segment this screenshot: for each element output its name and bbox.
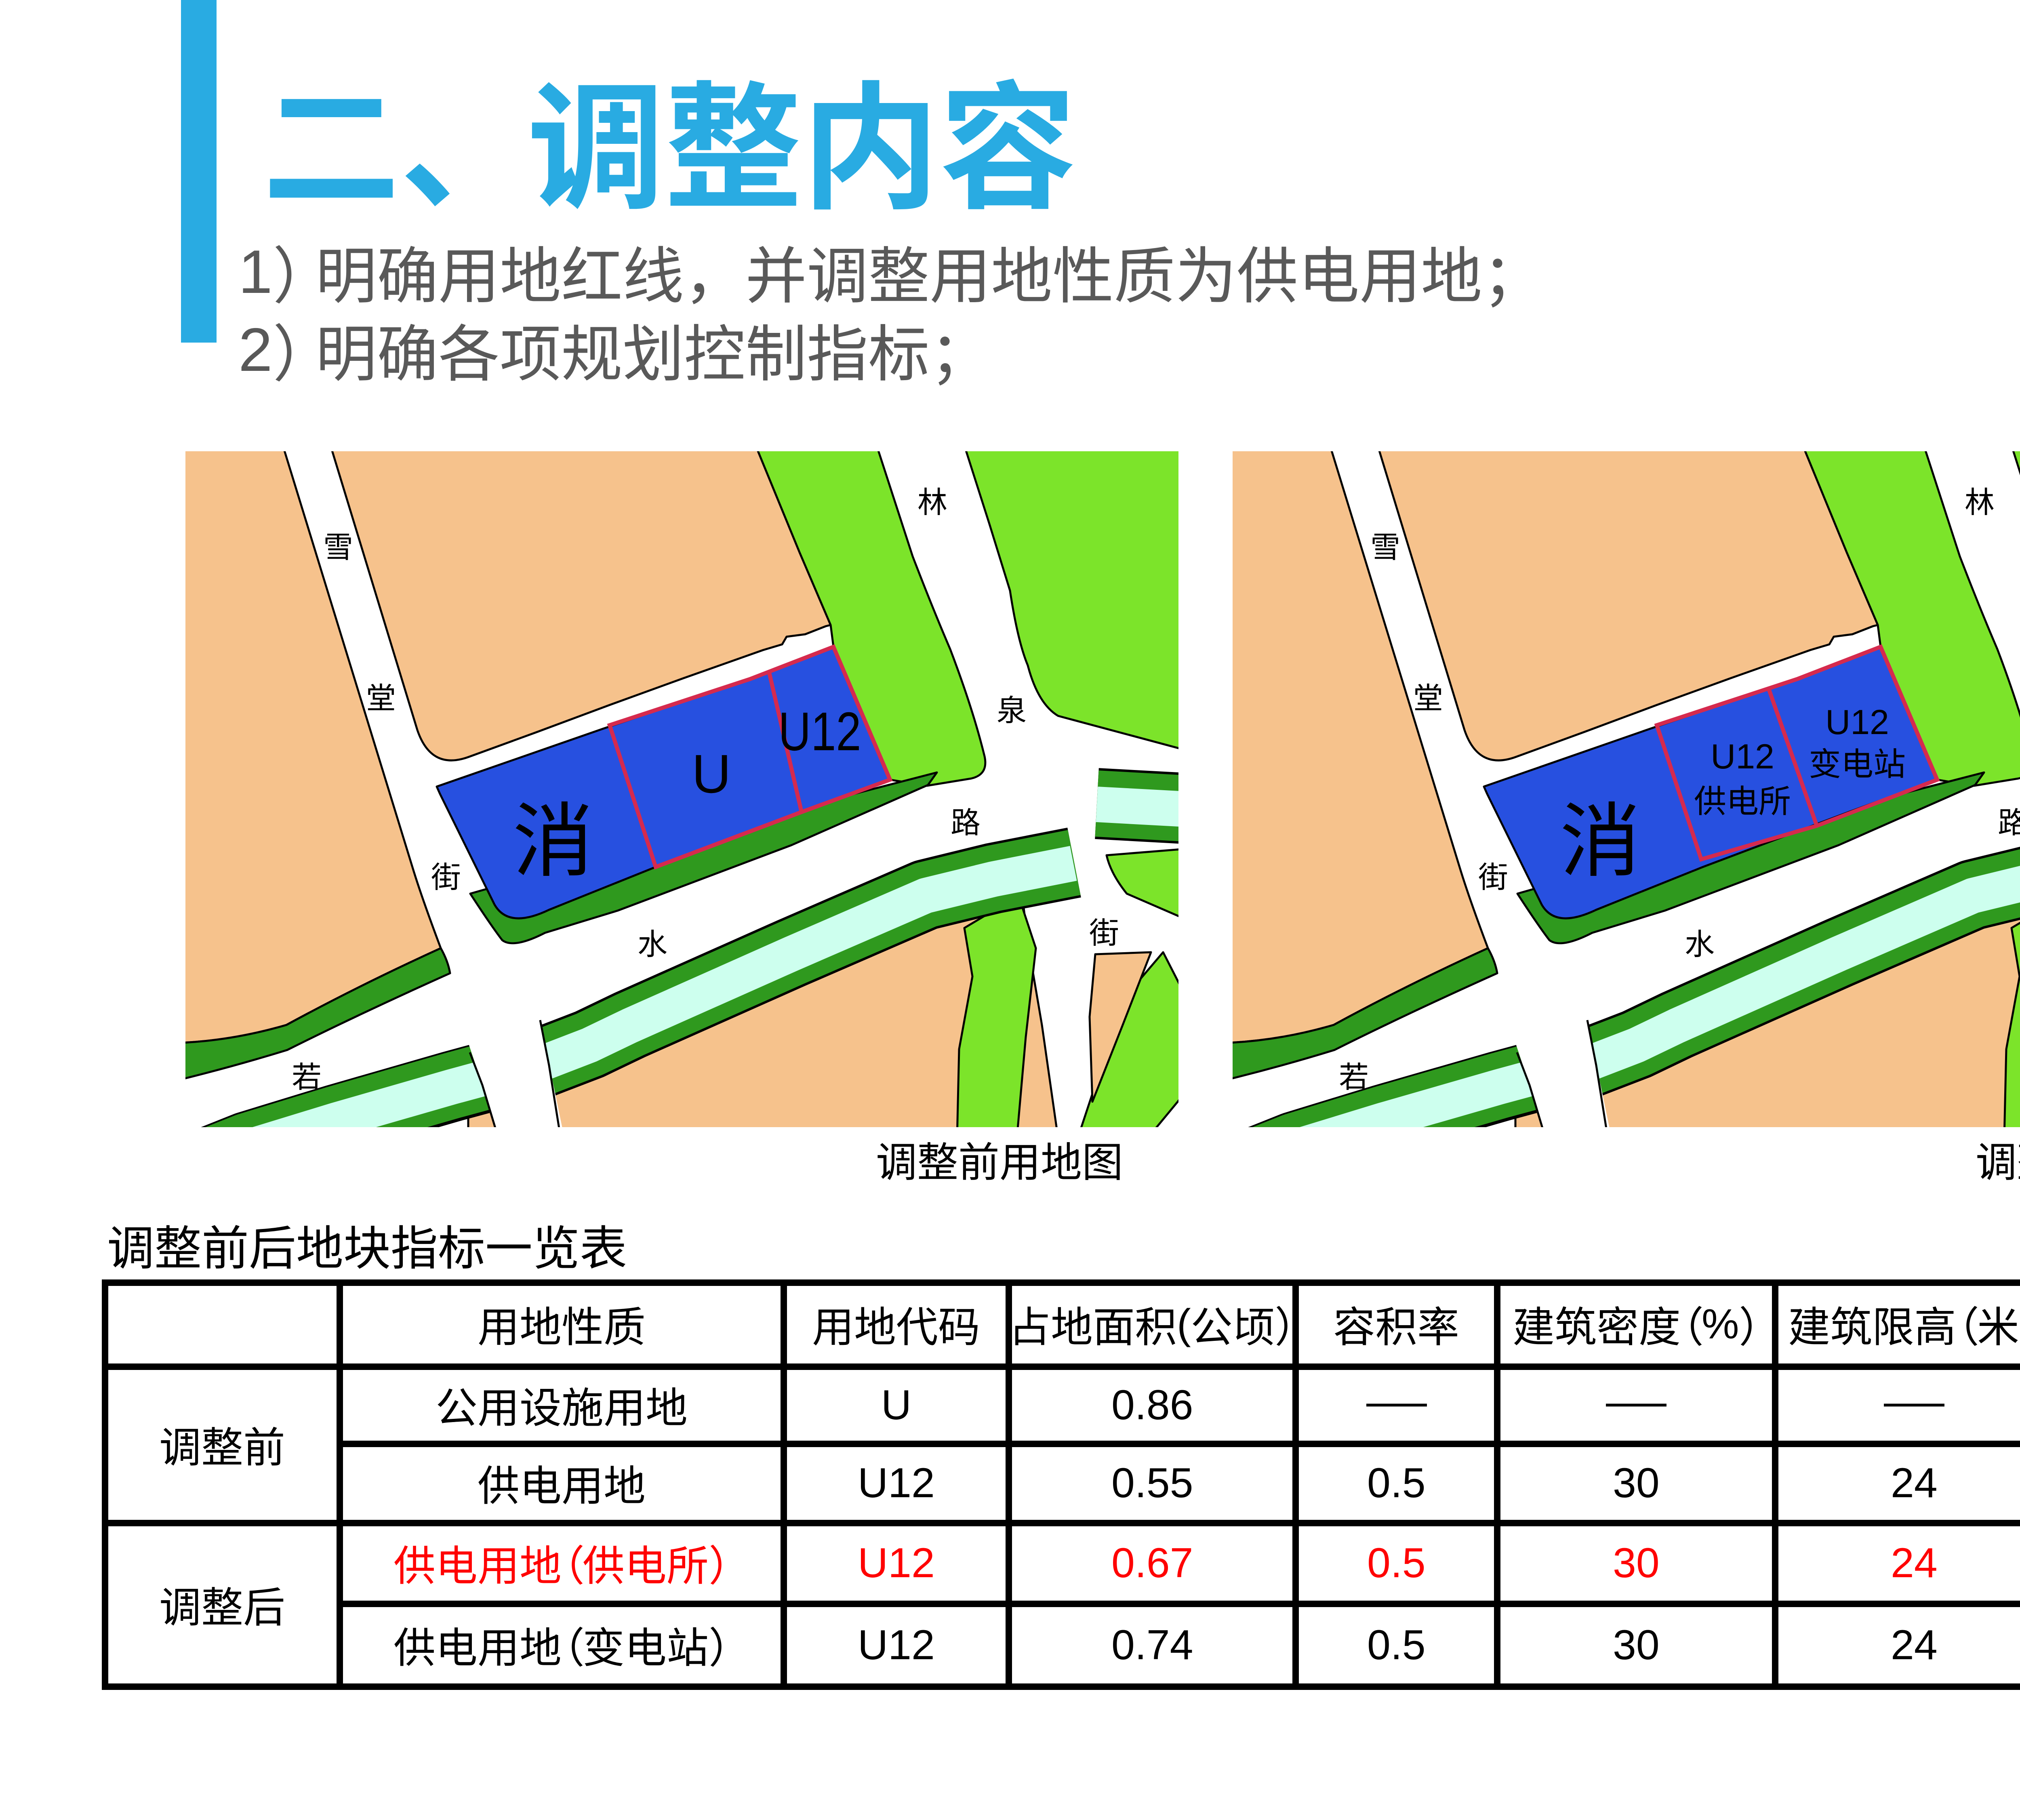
- svg-text:U12: U12: [858, 1622, 935, 1669]
- svg-text:0.5: 0.5: [1367, 1622, 1426, 1669]
- svg-text:24: 24: [1891, 1540, 1938, 1586]
- svg-text:30: 30: [1613, 1540, 1660, 1586]
- svg-text:%: %: [1702, 1301, 1739, 1348]
- svg-text:24: 24: [1891, 1460, 1938, 1506]
- svg-text:U12: U12: [858, 1540, 935, 1586]
- svg-text:U12: U12: [1825, 703, 1889, 742]
- svg-text:2: 2: [238, 316, 273, 384]
- svg-text:U12: U12: [1711, 737, 1774, 776]
- svg-text:U: U: [881, 1382, 911, 1429]
- svg-text:1: 1: [238, 238, 273, 306]
- svg-text:U: U: [692, 743, 731, 804]
- svg-text:0.5: 0.5: [1367, 1540, 1426, 1586]
- svg-text:0.55: 0.55: [1111, 1460, 1193, 1506]
- svg-text:0.5: 0.5: [1367, 1460, 1426, 1506]
- svg-text:0.67: 0.67: [1111, 1540, 1193, 1586]
- svg-text:U12: U12: [858, 1460, 935, 1506]
- svg-text:30: 30: [1613, 1622, 1660, 1669]
- svg-text:0.74: 0.74: [1111, 1622, 1193, 1669]
- svg-text:(: (: [1177, 1301, 1191, 1348]
- svg-text:U12: U12: [779, 701, 861, 762]
- svg-text:24: 24: [1891, 1622, 1938, 1669]
- svg-text:0.86: 0.86: [1111, 1382, 1193, 1429]
- svg-text:30: 30: [1613, 1460, 1660, 1506]
